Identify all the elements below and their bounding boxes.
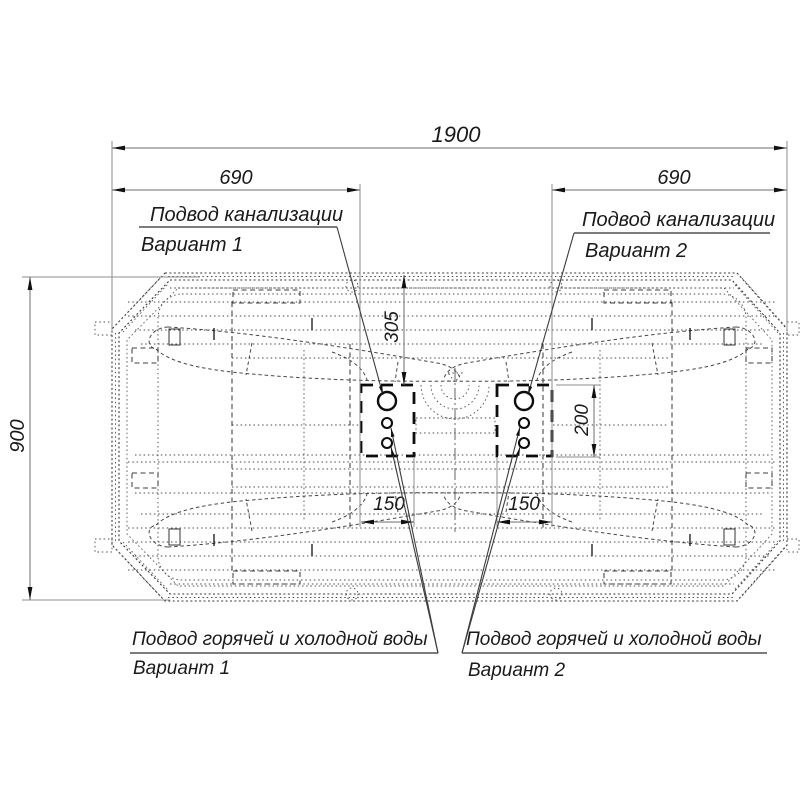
water-pipe-2a [519, 418, 529, 428]
wing-lower-right [444, 492, 755, 547]
water-pipe-1a [382, 418, 392, 428]
label-sewer2-line1: Подвод канализации [582, 209, 775, 231]
dim-sewer-offset-value: 305 [382, 311, 403, 343]
label-sewer-option-1: Подвод канализации Вариант 1 [139, 204, 383, 395]
zone1-boundary [361, 385, 414, 456]
dim-zone1-offset-value: 690 [219, 167, 252, 189]
label-sewer-option-2: Подвод канализации Вариант 2 [528, 209, 775, 395]
dim-overall-length: 1900 [112, 122, 787, 148]
tub-outer-contour [112, 273, 787, 601]
dim-zone2-width-value: 150 [508, 494, 540, 515]
connection-zone-2 [497, 385, 552, 456]
drawing-canvas: 1900 690 690 900 305 200 150 150 Подвод … [0, 0, 800, 800]
zone2-boundary [497, 385, 552, 456]
tub-rim-opening [158, 294, 746, 580]
dim-zone1-offset: 690 [112, 167, 360, 190]
dim-zone2-offset: 690 [552, 167, 787, 190]
dim-zone1-width-value: 150 [373, 494, 405, 515]
bathtub-installation-drawing: 1900 690 690 900 305 200 150 150 Подвод … [0, 0, 800, 800]
label-water-option-2: Подвод горячей и холодной воды Вариант 2 [462, 427, 767, 681]
water-pipe-2b [519, 438, 529, 448]
label-water-option-1: Подвод горячей и холодной воды Вариант 1 [130, 428, 438, 679]
sewer-pipe-1 [378, 392, 396, 410]
connection-zone-1 [361, 385, 414, 456]
wing-upper-left [149, 327, 460, 382]
leader-water2-b [462, 447, 520, 653]
label-water2-line1: Подвод горячей и холодной воды [466, 629, 762, 650]
leader-sewer2 [528, 233, 574, 395]
rib-lines [128, 288, 776, 584]
label-water2-line2: Вариант 2 [468, 660, 566, 681]
wing-upper-right [444, 327, 755, 382]
corner-hatch [116, 277, 785, 597]
dim-zone-height-value: 200 [572, 404, 593, 437]
label-sewer1-line1: Подвод канализации [150, 204, 343, 226]
wing-lower-left [149, 492, 460, 547]
dim-overall-width-value: 900 [7, 419, 29, 452]
label-sewer1-line2: Вариант 1 [141, 234, 243, 256]
dim-overall-length-value: 1900 [432, 122, 482, 147]
dim-overall-width: 900 [7, 277, 30, 600]
label-water1-line2: Вариант 1 [133, 658, 230, 679]
dim-zone-height: 200 [572, 385, 594, 457]
inner-vertical-lines [232, 302, 672, 572]
dim-sewer-offset: 305 [382, 275, 404, 385]
dim-zone2-offset-value: 690 [657, 167, 690, 189]
leader-water2-a [462, 427, 520, 653]
sewer-pipe-2 [515, 392, 533, 410]
mounting-brackets [95, 280, 799, 600]
label-water1-line1: Подвод горячей и холодной воды [132, 629, 428, 650]
label-sewer2-line2: Вариант 2 [585, 240, 687, 262]
water-pipe-1b [382, 438, 392, 448]
